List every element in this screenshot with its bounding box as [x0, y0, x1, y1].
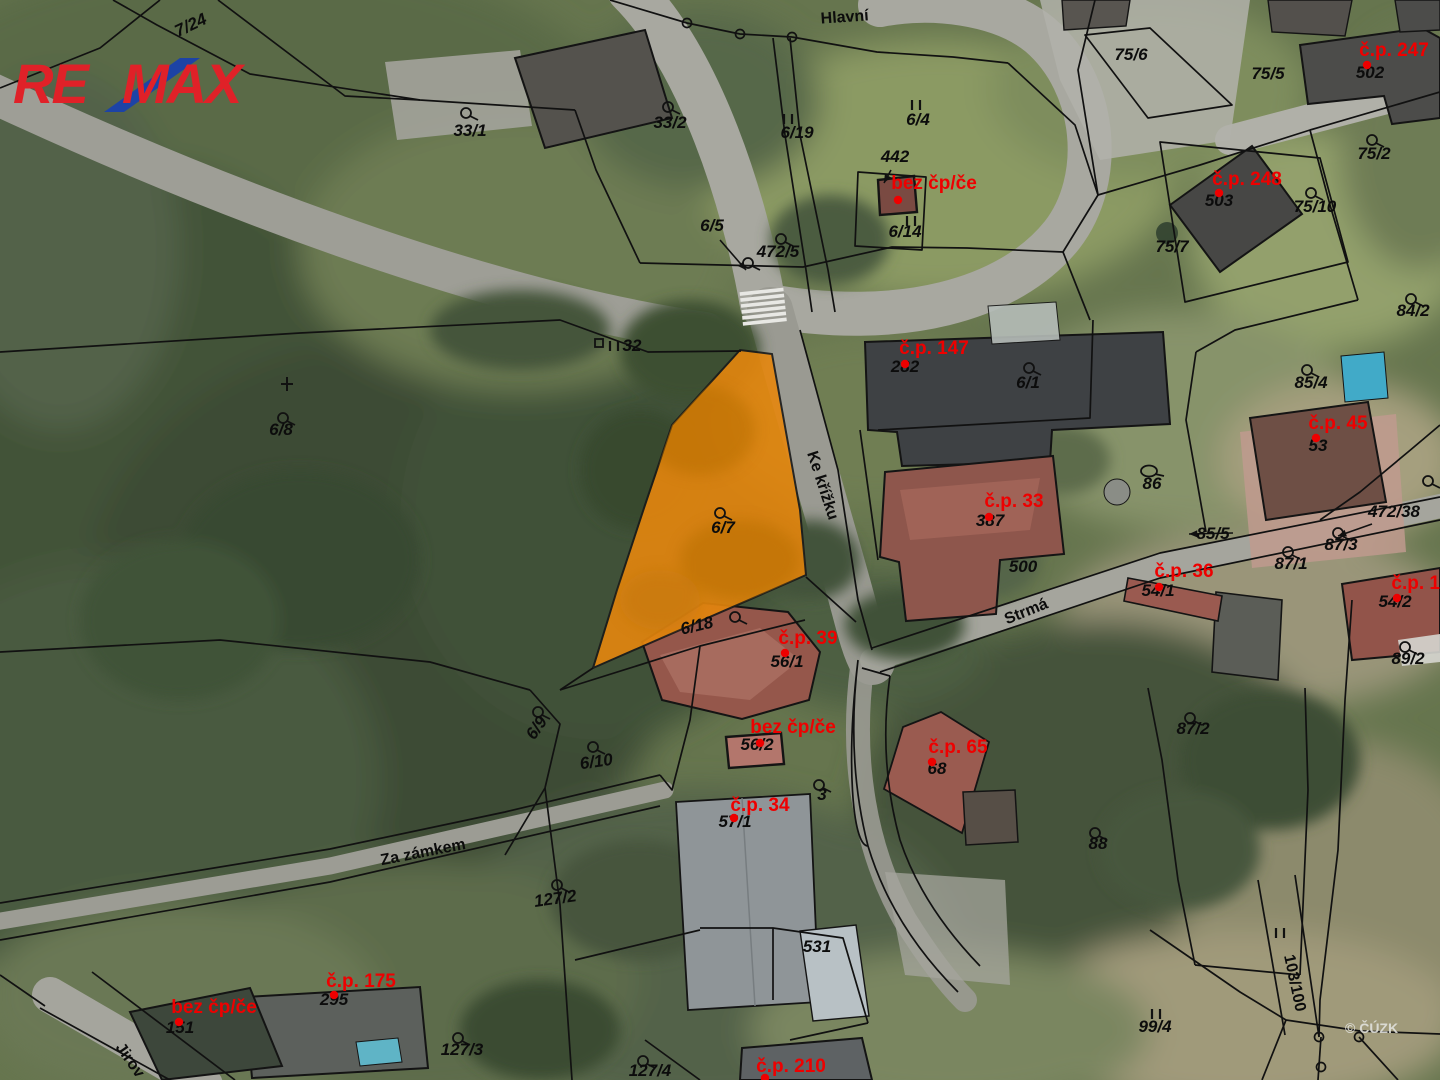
parcel-label: 33/1	[453, 121, 486, 140]
house-point	[1215, 189, 1223, 197]
parcel-label: 442	[880, 147, 910, 166]
house-number-label: bez čp/če	[750, 717, 836, 738]
parcel-label: 3	[817, 785, 827, 804]
street-label: Hlavní	[820, 7, 870, 27]
house-number-label: č.p. 36	[1154, 561, 1213, 582]
house-number-label: č.p. 248	[1212, 169, 1282, 190]
parcel-label: 85/4	[1294, 373, 1328, 392]
house-point	[985, 513, 993, 521]
parcel-label: 500	[1009, 557, 1038, 576]
house-number-label: č.p. 39	[778, 628, 837, 649]
parcel-label: 86	[1143, 474, 1162, 493]
house-point	[175, 1018, 183, 1026]
parcel-label: 6/4	[906, 110, 930, 129]
parcel-label: 99/4	[1138, 1017, 1172, 1036]
house-number-label: č.p. 13	[1391, 573, 1440, 594]
house-point	[1393, 594, 1401, 602]
house-point	[928, 758, 936, 766]
house-point	[894, 196, 902, 204]
house-number-label: č.p. 34	[730, 795, 790, 816]
parcel-label: 6/14	[888, 222, 922, 241]
parcel-label: 472/5	[756, 242, 800, 261]
house-point	[1363, 61, 1371, 69]
parcel-label: 32	[623, 336, 642, 355]
house-number-label: bez čp/če	[171, 997, 257, 1018]
parcel-label: 6/1	[1016, 373, 1040, 392]
parcel-label: 75/6	[1114, 45, 1148, 64]
house-number-label: č.p. 33	[984, 491, 1043, 512]
parcel-label: 6/19	[780, 123, 814, 142]
parcel-label: 6/7	[711, 518, 736, 537]
house-point	[756, 739, 764, 747]
house-number-label: č.p. 147	[899, 338, 969, 359]
parcel-label: 75/5	[1251, 64, 1285, 83]
cadastral-map: HlavníKe křížkuStrmáZa zámkemJirov103/10…	[0, 0, 1440, 1080]
house-number-label: č.p. 210	[756, 1056, 826, 1077]
parcel-label: 84/2	[1396, 301, 1430, 320]
remax-logo: RE MAX	[13, 52, 246, 115]
house-number-label: č.p. 65	[928, 737, 988, 758]
parcel-label: 472/38	[1367, 502, 1421, 521]
parcel-label: 75/10	[1294, 197, 1337, 216]
parcel-label: 75/7	[1155, 237, 1190, 256]
house-number-label: č.p. 175	[326, 971, 396, 992]
house-point	[781, 649, 789, 657]
remax-logo-max: MAX	[122, 52, 246, 115]
house-number-label: bez čp/če	[891, 173, 977, 194]
parcel-label: 127/3	[441, 1040, 484, 1059]
parcel-label: 87/1	[1274, 554, 1307, 573]
cuzk-watermark: © ČÚZK	[1345, 1019, 1398, 1036]
house-point	[330, 991, 338, 999]
parcel-label: 531	[803, 937, 831, 956]
parcel-label: 6/8	[269, 420, 293, 439]
house-point	[901, 360, 909, 368]
parcel-label: 85/5	[1196, 524, 1230, 543]
house-number-label: č.p. 247	[1359, 40, 1429, 61]
remax-logo-re: RE	[13, 52, 90, 115]
parcel-label: 88	[1089, 834, 1108, 853]
parcel-label: 6/5	[700, 216, 724, 235]
parcel-label: 75/2	[1357, 144, 1391, 163]
parcel-label: 127/4	[629, 1061, 672, 1080]
parcel-label: 33/2	[653, 113, 687, 132]
house-point	[1312, 434, 1320, 442]
house-point	[1155, 583, 1163, 591]
parcel-label: 87/2	[1176, 719, 1210, 738]
parcel-label: 89/2	[1391, 649, 1425, 668]
house-number-label: č.p. 45	[1308, 413, 1368, 434]
parcel-label: 87/3	[1324, 535, 1358, 554]
